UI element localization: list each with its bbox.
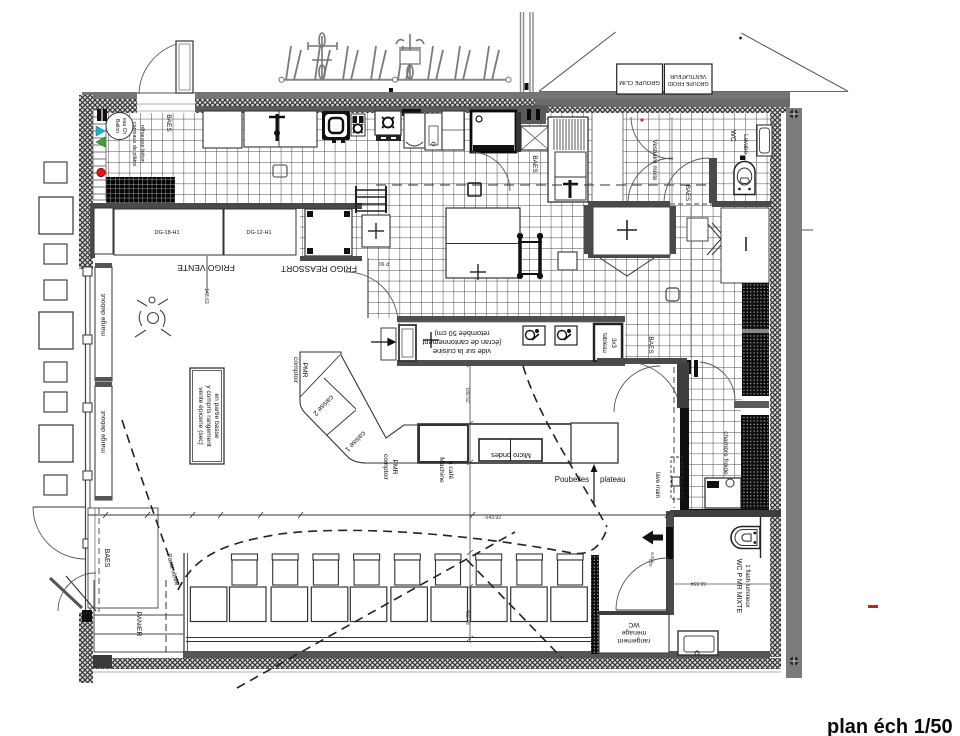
svg-text:BAES: BAES: [531, 155, 538, 173]
svg-text:tableau: tableau: [601, 333, 607, 353]
svg-text:comptoir: comptoir: [292, 357, 299, 384]
svg-text:3x3: 3x3: [610, 338, 616, 348]
svg-text:FRIGO REASSORT: FRIGO REASSORT: [281, 264, 357, 274]
svg-text:DG-18-H1: DG-18-H1: [154, 230, 179, 236]
svg-text:comptoir: comptoir: [382, 454, 389, 481]
svg-text:P 90: P 90: [379, 260, 389, 266]
svg-text:Poubelles: Poubelles: [555, 475, 589, 484]
svg-text:(écran de cantonnement: (écran de cantonnement: [422, 338, 501, 347]
svg-text:lave main: lave main: [654, 472, 660, 498]
svg-text:BAES: BAES: [165, 114, 172, 132]
svg-text:148.63: 148.63: [203, 288, 209, 304]
svg-text:-543.93: -543.93: [484, 515, 501, 521]
svg-text:66.694: 66.694: [690, 580, 706, 586]
svg-text:plan éch 1/50: plan éch 1/50: [827, 716, 953, 736]
svg-text:VENTILATEUR: VENTILATEUR: [670, 73, 706, 79]
svg-text:marge debout: marge debout: [100, 411, 107, 453]
svg-text:vente épicerie (sec): vente épicerie (sec): [197, 387, 204, 445]
svg-text:plateau: plateau: [600, 475, 626, 484]
svg-text:020: 020: [648, 559, 653, 567]
svg-text:Machine: Machine: [438, 457, 445, 483]
svg-text:Vestiaire mixte: Vestiaire mixte: [651, 140, 658, 181]
svg-text:Micro ondes: Micro ondes: [491, 451, 531, 460]
svg-text:PMR: PMR: [391, 459, 398, 474]
svg-text:ménage: ménage: [621, 629, 646, 636]
svg-text:retombée 50 cm): retombée 50 cm): [434, 329, 489, 338]
svg-text:PANIER: PANIER: [135, 612, 142, 637]
svg-text:a café: a café: [447, 461, 454, 480]
svg-text:y compris rangement: y compris rangement: [205, 385, 212, 447]
svg-text:459.48: 459.48: [464, 609, 470, 625]
svg-text:FRIGO VENTE: FRIGO VENTE: [177, 263, 235, 273]
svg-text:WC: WC: [729, 130, 736, 142]
svg-text:1 flash lumineux: 1 flash lumineux: [744, 564, 750, 607]
svg-text:GROUPE CLIM: GROUPE CLIM: [619, 79, 660, 85]
svg-text:BAES: BAES: [684, 185, 690, 201]
svg-text:WC P MR MIXTE: WC P MR MIXTE: [735, 559, 742, 614]
svg-text:189.52: 189.52: [464, 387, 470, 403]
svg-text:chambre froide: chambre froide: [722, 431, 729, 475]
svg-text:WC: WC: [628, 621, 639, 628]
svg-text:rangement: rangement: [618, 637, 651, 644]
svg-text:vide sur la cuisine: vide sur la cuisine: [433, 347, 491, 356]
svg-text:GROUPE FROID: GROUPE FROID: [668, 80, 709, 86]
svg-text:eau Ch: eau Ch: [121, 118, 127, 134]
svg-text:réhausse béton: réhausse béton: [139, 125, 145, 163]
svg-text:BAES: BAES: [103, 549, 110, 568]
svg-text:Ballon: Ballon: [114, 119, 120, 133]
svg-text:Lavabo: Lavabo: [742, 134, 748, 154]
svg-text:en partie basse: en partie basse: [213, 393, 220, 438]
svg-text:carreaux de plâtre: carreaux de plâtre: [131, 122, 137, 166]
svg-text:DG-12-H1: DG-12-H1: [246, 230, 271, 236]
svg-text:BAES: BAES: [647, 336, 654, 354]
svg-text:marge debout: marge debout: [100, 294, 107, 336]
svg-text:PMR: PMR: [301, 362, 308, 377]
